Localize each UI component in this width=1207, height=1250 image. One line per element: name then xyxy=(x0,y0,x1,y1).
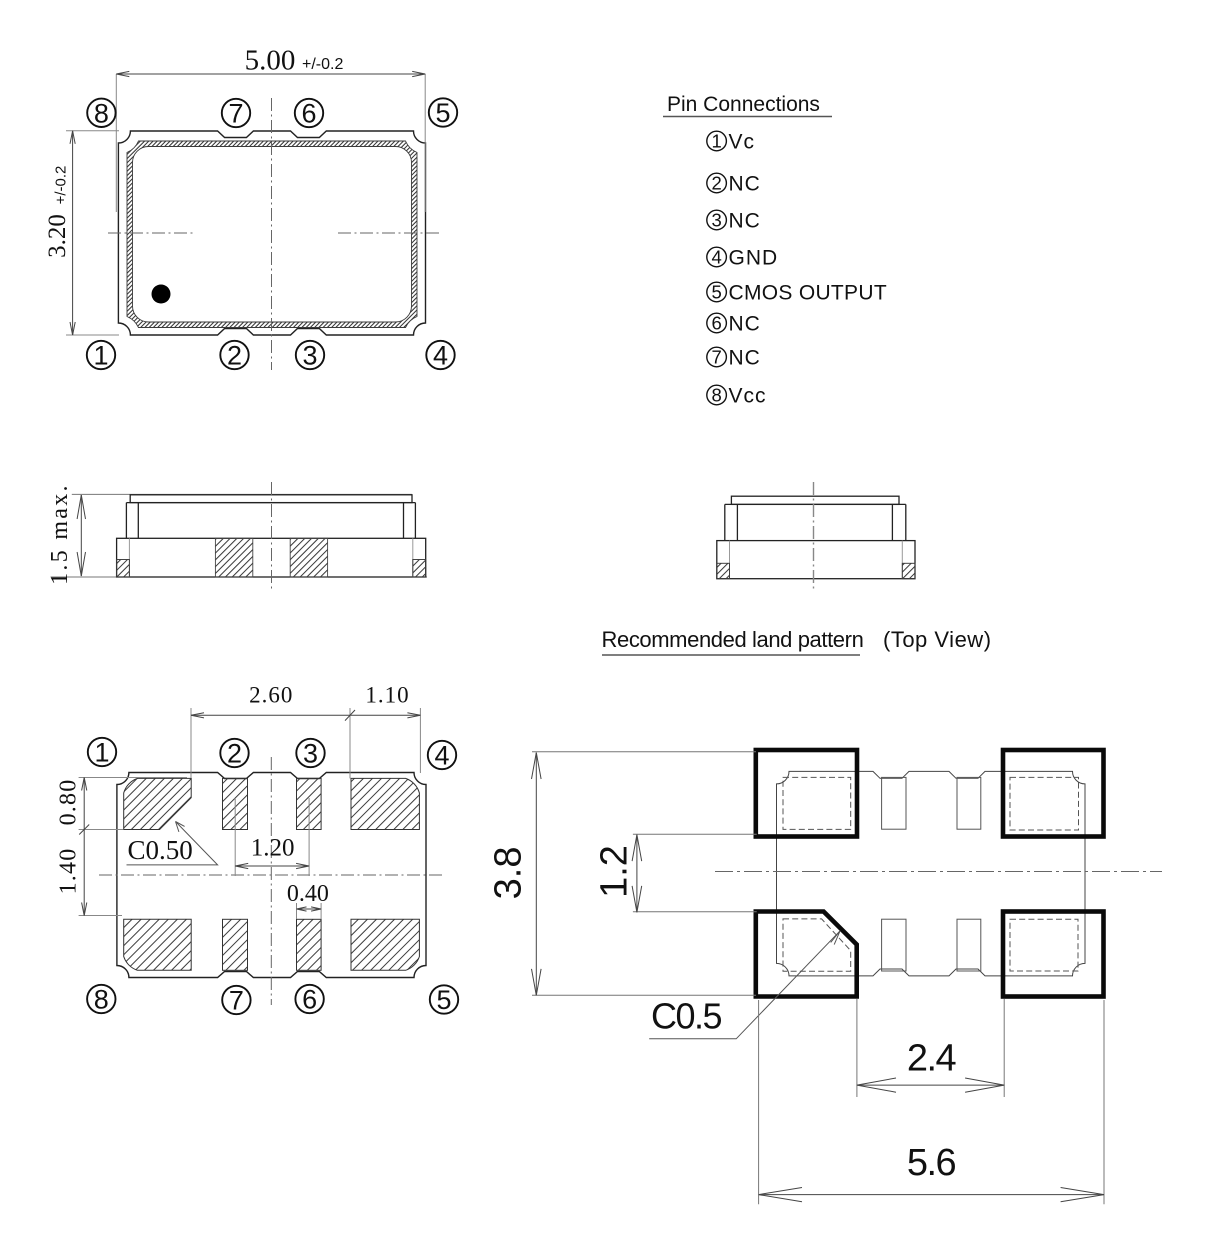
svg-text:4: 4 xyxy=(711,247,721,268)
svg-text:Pin Connections: Pin Connections xyxy=(667,93,820,116)
svg-text:4: 4 xyxy=(434,741,449,771)
svg-text:3.20: 3.20 xyxy=(44,214,71,258)
svg-text:3.8: 3.8 xyxy=(488,846,530,899)
svg-text:C0.50: C0.50 xyxy=(128,835,193,865)
svg-text:6: 6 xyxy=(302,985,317,1015)
svg-text:7: 7 xyxy=(711,347,721,368)
svg-text:5: 5 xyxy=(711,282,721,303)
svg-text:1.10: 1.10 xyxy=(365,683,409,708)
svg-text:8: 8 xyxy=(94,99,109,129)
svg-text:NC: NC xyxy=(729,313,761,336)
svg-text:0.80: 0.80 xyxy=(56,779,82,826)
svg-text:5: 5 xyxy=(435,98,450,128)
svg-text:GND: GND xyxy=(729,247,779,270)
svg-text:2: 2 xyxy=(711,173,721,194)
svg-text:NC: NC xyxy=(729,210,761,233)
svg-text:2.60: 2.60 xyxy=(249,683,293,708)
svg-text:3: 3 xyxy=(302,341,317,371)
svg-text:4: 4 xyxy=(433,341,448,371)
svg-text:1.2: 1.2 xyxy=(594,845,636,898)
svg-text:NC: NC xyxy=(729,173,761,196)
svg-text:C0.5: C0.5 xyxy=(651,996,722,1037)
svg-text:7: 7 xyxy=(228,99,243,129)
svg-text:1: 1 xyxy=(94,738,109,768)
svg-text:CMOS OUTPUT: CMOS OUTPUT xyxy=(729,282,887,305)
svg-text:2: 2 xyxy=(227,739,242,769)
svg-text:6: 6 xyxy=(711,313,721,334)
svg-text:1: 1 xyxy=(93,341,108,371)
svg-text:1.20: 1.20 xyxy=(251,834,295,861)
svg-text:NC: NC xyxy=(729,347,761,370)
svg-text:7: 7 xyxy=(229,986,244,1016)
svg-text:(Top View): (Top View) xyxy=(883,627,992,652)
svg-text:1: 1 xyxy=(711,131,721,152)
svg-text:Vcc: Vcc xyxy=(729,385,767,408)
svg-text:8: 8 xyxy=(711,385,721,406)
svg-text:0.40: 0.40 xyxy=(287,881,329,907)
svg-text:1.40: 1.40 xyxy=(56,848,82,895)
svg-text:8: 8 xyxy=(94,985,109,1015)
svg-text:5: 5 xyxy=(436,985,451,1015)
svg-text:Recommended land pattern: Recommended land pattern xyxy=(602,627,864,652)
svg-text:2.4: 2.4 xyxy=(907,1038,957,1080)
svg-text:+/-0.2: +/-0.2 xyxy=(53,166,70,205)
svg-text:Vc: Vc xyxy=(729,131,756,154)
svg-text:+/-0.2: +/-0.2 xyxy=(302,56,343,73)
svg-text:2: 2 xyxy=(227,341,242,371)
svg-text:6: 6 xyxy=(301,99,316,129)
svg-text:3: 3 xyxy=(303,739,318,769)
svg-text:5.6: 5.6 xyxy=(907,1142,956,1184)
svg-text:5.00: 5.00 xyxy=(245,45,296,77)
svg-text:1.5 max.: 1.5 max. xyxy=(47,483,73,585)
svg-text:3: 3 xyxy=(711,210,721,231)
